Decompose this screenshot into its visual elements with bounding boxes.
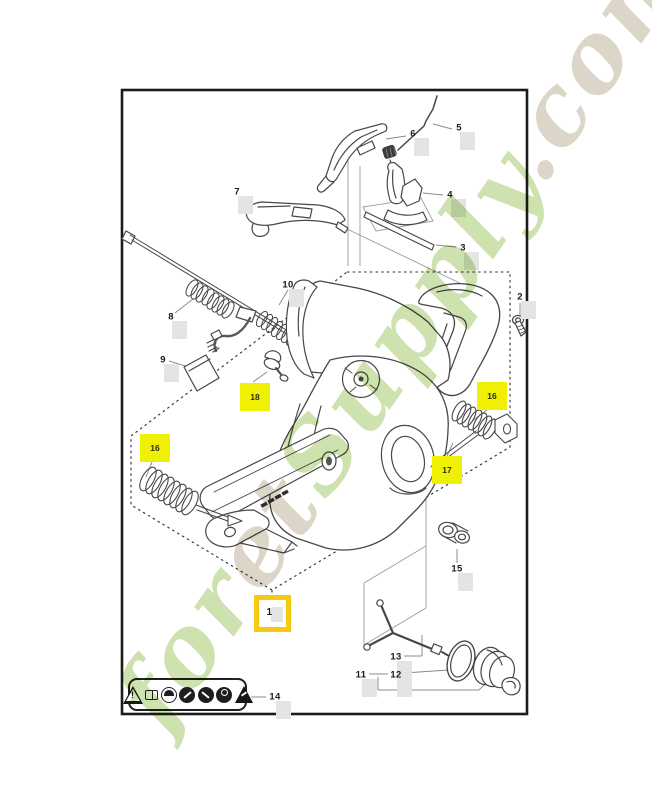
part-number-13[interactable]: 13 xyxy=(390,652,401,663)
hotspot-ghost xyxy=(276,701,291,719)
hotspot-ghost xyxy=(362,679,377,697)
part-number-14[interactable]: 14 xyxy=(269,692,280,703)
hotspot-ghost xyxy=(451,199,466,217)
part-number-9[interactable]: 9 xyxy=(160,355,166,366)
part-number-5[interactable]: 5 xyxy=(456,123,462,134)
highlighted-part-16[interactable]: 16 xyxy=(140,434,170,462)
highlighted-part-16[interactable]: 16 xyxy=(477,382,507,410)
hotspot-ghost xyxy=(464,252,479,270)
highlighted-part-18[interactable]: 18 xyxy=(240,383,270,411)
hotspot-ghost xyxy=(460,132,475,150)
part-number-8[interactable]: 8 xyxy=(168,312,174,323)
hotspot-ghost xyxy=(238,196,253,214)
part-number-6[interactable]: 6 xyxy=(410,129,416,140)
hotspot-ghost xyxy=(289,289,304,307)
part-number: 1 xyxy=(267,607,273,618)
hotspot-ghost xyxy=(271,607,283,622)
part-number-12[interactable]: 12 xyxy=(390,670,401,681)
part-number-15[interactable]: 15 xyxy=(451,564,462,575)
part-number-10[interactable]: 10 xyxy=(282,280,293,291)
parts-diagram-page: 12345678910111213141516161718 ! foretSup… xyxy=(0,0,652,800)
hotspot-ghost xyxy=(164,364,179,382)
hotspot-ghost xyxy=(397,679,412,697)
part-number-11[interactable]: 11 xyxy=(356,670,367,681)
callout-layer: 12345678910111213141516161718 xyxy=(0,0,652,800)
hotspot-ghost xyxy=(414,138,429,156)
highlighted-part-1[interactable]: 1 xyxy=(254,595,291,632)
part-number-4[interactable]: 4 xyxy=(447,190,453,201)
part-number-3[interactable]: 3 xyxy=(460,243,466,254)
hotspot-ghost xyxy=(458,573,473,591)
part-number-2[interactable]: 2 xyxy=(517,292,523,303)
highlighted-part-17[interactable]: 17 xyxy=(432,456,462,484)
hotspot-ghost xyxy=(172,321,187,339)
hotspot-ghost xyxy=(521,301,536,319)
part-number-7[interactable]: 7 xyxy=(234,187,240,198)
